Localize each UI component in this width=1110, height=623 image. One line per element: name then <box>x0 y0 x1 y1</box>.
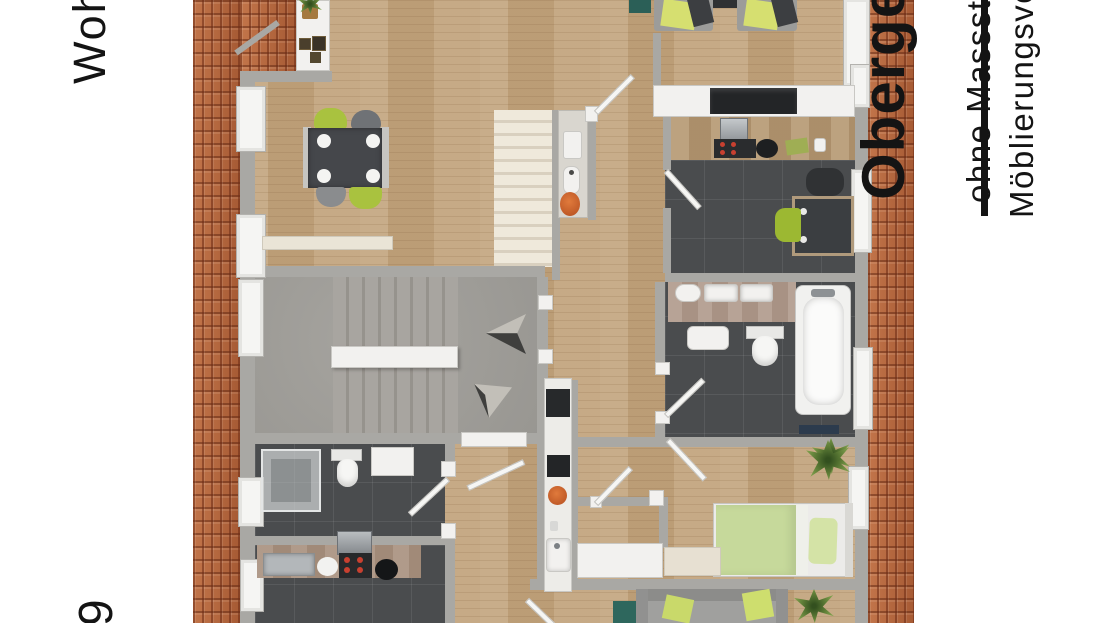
stair-railing-bar <box>331 346 458 368</box>
dining-sideboard <box>262 236 393 250</box>
wardrobe <box>577 543 663 578</box>
side-label-living-area: Wohnfläche <box>63 0 117 84</box>
door-post <box>649 490 664 506</box>
wall-vestibule-vertical <box>659 506 668 548</box>
wall-bath-left-right-b <box>445 538 455 623</box>
door-post <box>441 523 456 539</box>
cooktop-left <box>339 553 372 578</box>
page-title: Obergeschoss <box>850 0 918 200</box>
wall-office-left-a <box>663 117 671 170</box>
kitchenette-faucet <box>554 543 560 549</box>
extractor-hood <box>337 531 372 555</box>
burner <box>357 557 363 563</box>
bathtub-faucet <box>811 289 835 297</box>
bed-duvet <box>716 505 796 575</box>
bed-pillow <box>808 518 838 565</box>
wall-stairhall-bottom-left <box>255 433 461 444</box>
plate <box>317 169 331 183</box>
wall-dining-top <box>240 71 332 82</box>
sofa-pillow-green <box>662 594 694 623</box>
plate <box>366 134 380 148</box>
stair-arrow-upper <box>486 314 526 354</box>
burner <box>720 150 725 155</box>
door-post <box>538 349 553 364</box>
door-post <box>441 461 456 477</box>
shelf-decor-1 <box>299 38 311 50</box>
shelf-decor-3 <box>310 52 321 63</box>
door-post <box>655 362 670 375</box>
dining-chair-top-right <box>351 110 381 129</box>
plate <box>317 134 331 148</box>
plate <box>366 169 380 183</box>
door-post <box>538 295 553 310</box>
side-label-area-fragment: 9 <box>70 599 124 623</box>
subtitle-furnishing: Möblierungsvorschlag <box>1001 0 1043 218</box>
wall-bedroom-top <box>575 437 868 447</box>
kitchen-left-sink <box>263 553 315 576</box>
sofa <box>636 589 788 623</box>
bath-mat-navy <box>799 425 839 434</box>
bathtub <box>795 285 851 415</box>
wall-office-left-b <box>663 208 671 273</box>
tv-screen <box>710 88 797 114</box>
bedroom-bench <box>664 547 721 576</box>
niche-orange-bowl <box>560 192 580 216</box>
sofa-side-table-teal <box>613 601 638 623</box>
armchair-right <box>737 0 797 31</box>
desk <box>792 196 854 256</box>
niche-faucet-dot <box>569 170 574 175</box>
kitchenette-appliance-2 <box>547 455 570 477</box>
shower-mat <box>687 326 729 350</box>
wall-lounge-divider <box>653 33 661 85</box>
wall-stairhall-top <box>255 266 545 277</box>
armchair-left <box>654 0 713 31</box>
burner <box>344 557 350 563</box>
office-chair-dark <box>806 168 844 196</box>
window-right-3 <box>853 347 873 430</box>
arrow-facet-light <box>470 384 512 418</box>
wall-vanity-backsplash <box>665 273 855 282</box>
vanity-basin-left <box>704 284 738 302</box>
window-left-3 <box>238 279 264 357</box>
kitchen-towel-green <box>785 138 809 156</box>
subtitle-no-scale: ohne Massstab <box>958 0 1000 203</box>
lounge-plant-pot <box>629 0 651 13</box>
shelf-decor-2 <box>312 36 326 51</box>
kitchen-left-plate <box>317 557 338 576</box>
kitchenette-glass <box>550 521 558 531</box>
burner <box>731 142 736 147</box>
burner <box>720 142 725 147</box>
round-sink <box>756 139 778 158</box>
dining-bench-rail-right <box>381 127 389 188</box>
sofa-arm-right <box>776 589 788 623</box>
vanity-tray <box>675 284 701 302</box>
floorplan-canvas: Wohnfläche 9 Obergeschoss ohne Massstab … <box>0 0 1110 623</box>
kitchen-left-bowl <box>375 559 398 580</box>
toilet-right-bowl <box>752 336 778 366</box>
bath-left-shelf <box>371 447 414 476</box>
wall-kitchenette-left <box>537 443 544 580</box>
stair-arrow-lower <box>470 384 512 418</box>
burner <box>357 567 363 573</box>
desk-knob <box>800 208 807 215</box>
sofa-arm-left <box>636 589 648 623</box>
sofa-pillow-green <box>742 589 774 621</box>
desk-knob <box>800 236 807 243</box>
wall-wc-niche-right <box>588 108 596 220</box>
lounge-side-table <box>712 0 738 8</box>
kitchenette-orange-bowl <box>548 486 567 505</box>
kitchen-small-items <box>814 138 826 152</box>
niche-cistern <box>563 131 582 159</box>
bed-headboard <box>845 503 853 577</box>
burner <box>731 150 736 155</box>
shower-glass <box>261 449 321 512</box>
window-left-1 <box>236 86 266 152</box>
stair-flight-upper <box>494 110 554 267</box>
vanity-basin-right <box>740 284 773 302</box>
toilet-left-bowl <box>337 459 358 487</box>
bed-sheet-fold <box>796 505 808 575</box>
door-threshold <box>461 432 527 447</box>
bathtub-inner <box>803 297 844 405</box>
roof-tiles-left <box>193 0 240 623</box>
cooktop-right <box>714 139 756 158</box>
kitchenette-appliance-1 <box>546 389 570 417</box>
roof-tiles-top-left-corner <box>240 0 297 71</box>
office-chair-green <box>775 208 801 242</box>
dining-chair-top-left <box>314 108 347 129</box>
burner <box>344 567 350 573</box>
